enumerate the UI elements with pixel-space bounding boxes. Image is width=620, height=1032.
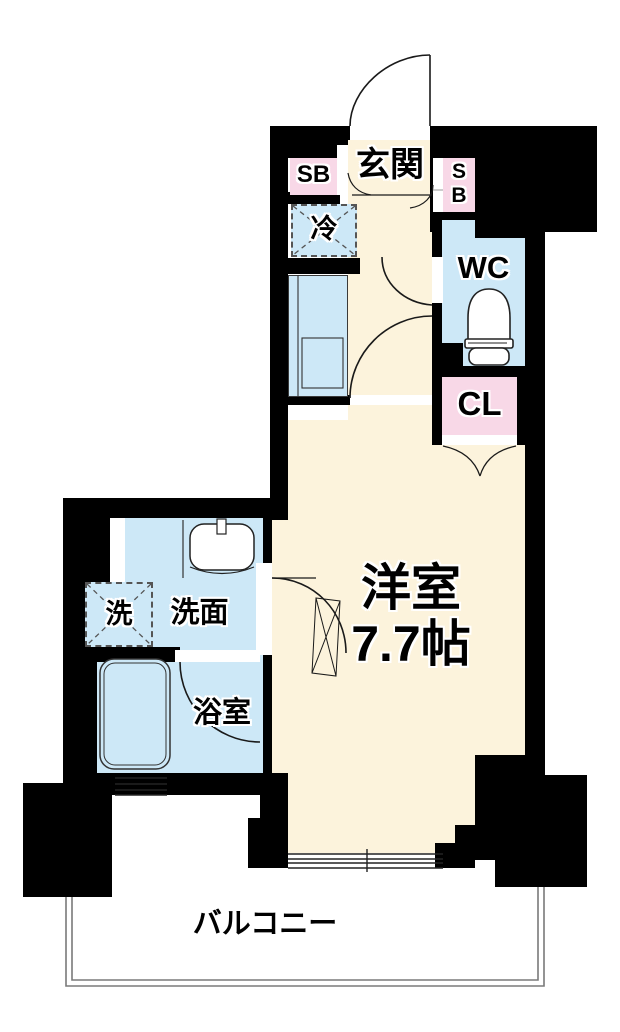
entrance-label: 玄関 — [348, 146, 432, 184]
shoebox-left-label: SB — [290, 162, 337, 189]
washroom-label: 洗面 — [152, 597, 247, 629]
wc-label: WC — [442, 251, 525, 286]
wall — [248, 818, 288, 868]
closet-door-opening — [442, 435, 517, 445]
shoebox-right-b: B — [451, 184, 466, 207]
washer-label: 洗 — [85, 599, 153, 629]
bathroom-label: 浴室 — [172, 697, 272, 729]
wall — [23, 783, 112, 897]
wall — [517, 377, 525, 445]
opening — [433, 158, 443, 212]
entry-door-arc — [350, 55, 430, 126]
balcony-label: バルコニー — [165, 908, 365, 940]
opening — [337, 145, 348, 195]
hall-room-door-opening — [350, 395, 432, 405]
kitchen-counter — [288, 275, 348, 397]
wall — [475, 775, 587, 860]
closet-label: CL — [442, 386, 517, 423]
main-room-label: 洋室 7.7帖 — [305, 560, 517, 672]
wall — [270, 126, 288, 510]
wall — [442, 343, 463, 366]
wall — [455, 825, 475, 868]
wall — [525, 232, 545, 755]
wall — [280, 258, 360, 274]
main-room-size: 7.7帖 — [351, 616, 471, 672]
wall — [475, 212, 525, 238]
washroom-door-opening — [256, 563, 272, 655]
wall — [475, 755, 545, 775]
wall — [495, 860, 587, 887]
washroom-edge-strip — [110, 518, 125, 580]
wall — [435, 843, 455, 868]
wall — [442, 366, 525, 377]
floorplan-canvas: 玄関 SB S B 冷 WC CL 洋室 7.7帖 洗 洗面 浴室 バルコニー — [0, 0, 620, 1032]
entry-door-opening — [350, 126, 430, 140]
bath-door-opening — [175, 650, 260, 662]
shoebox-right-label: S B — [443, 160, 475, 207]
main-room-name: 洋室 — [361, 560, 461, 616]
shoebox-right-s: S — [452, 160, 466, 183]
refrigerator-label: 冷 — [291, 214, 357, 244]
wall — [85, 647, 180, 662]
